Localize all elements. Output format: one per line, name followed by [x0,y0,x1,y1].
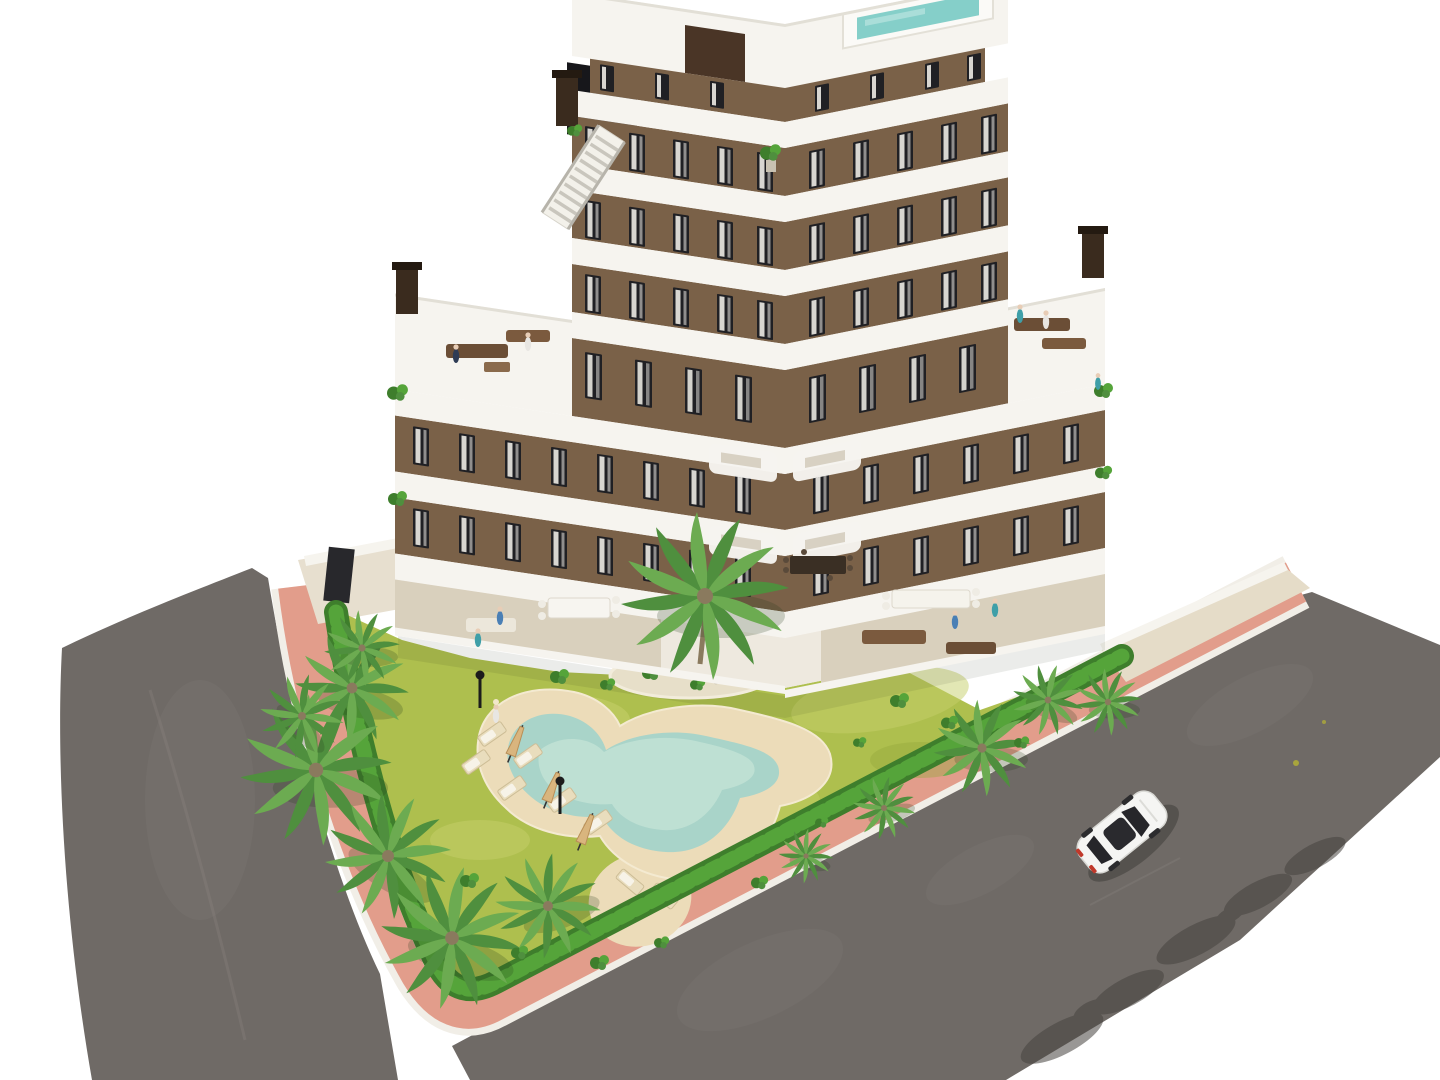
chimney [552,70,582,126]
balcony-person [1095,373,1101,390]
chimney [1078,226,1108,278]
chimney [392,262,422,314]
render-canvas [0,0,1440,1080]
road-debris [1293,760,1299,766]
rooftop-feature-wall [685,25,745,82]
scene-svg [0,0,1440,1080]
road-debris [1322,720,1326,724]
